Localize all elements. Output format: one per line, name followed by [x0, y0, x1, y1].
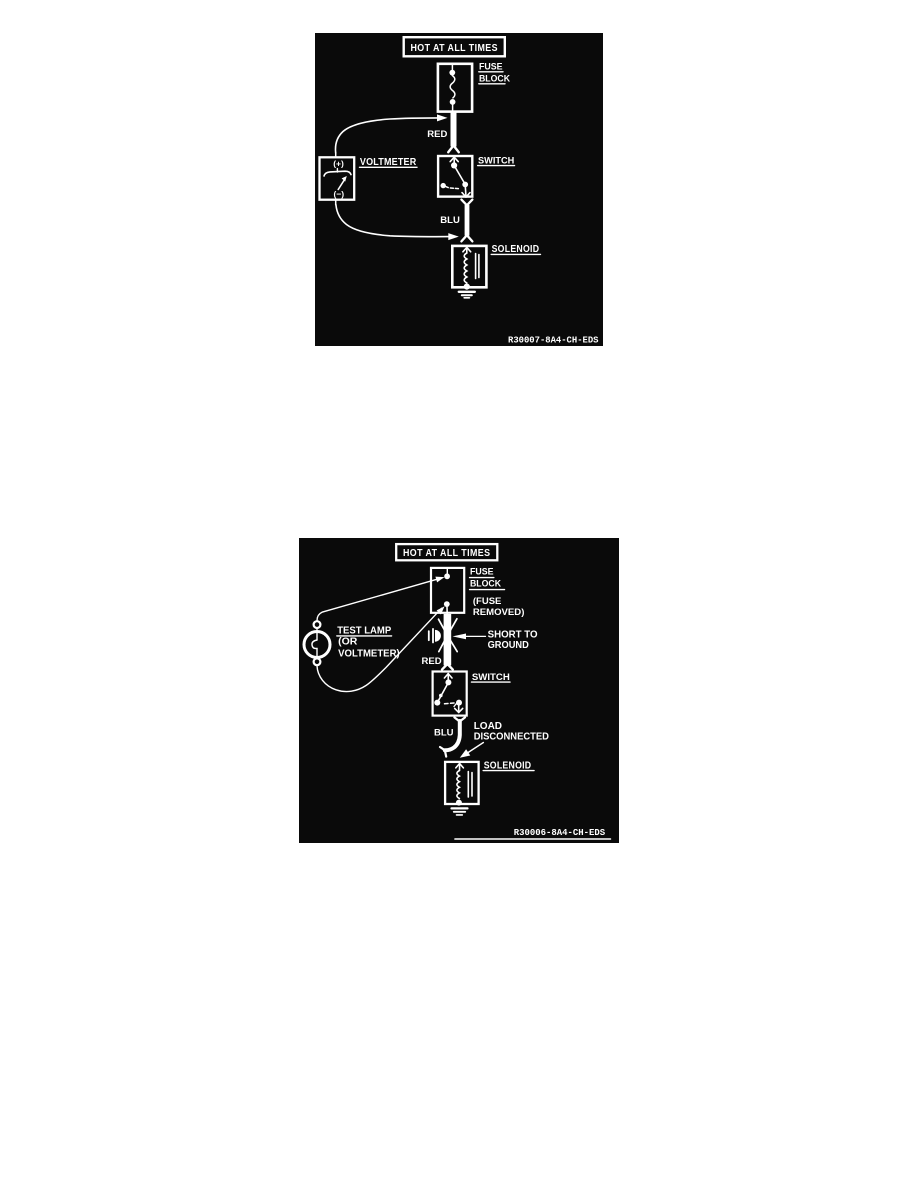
svg-text:(FUSE: (FUSE: [473, 596, 502, 607]
svg-text:HOT AT ALL TIMES: HOT AT ALL TIMES: [410, 42, 498, 54]
svg-text:BLOCK: BLOCK: [479, 74, 510, 85]
svg-text:SOLENOID: SOLENOID: [492, 244, 540, 255]
svg-text:VOLTMETER): VOLTMETER): [338, 647, 400, 659]
svg-text:HOT AT ALL TIMES: HOT AT ALL TIMES: [403, 547, 491, 559]
svg-text:LOAD: LOAD: [474, 721, 502, 732]
svg-text:DISCONNECTED: DISCONNECTED: [474, 732, 549, 743]
svg-text:SWITCH: SWITCH: [478, 155, 514, 166]
svg-text:R30006-8A4-CH-EDS: R30006-8A4-CH-EDS: [514, 827, 606, 838]
svg-text:RED: RED: [422, 656, 442, 667]
svg-text:VOLTMETER: VOLTMETER: [360, 157, 417, 168]
svg-text:FUSE: FUSE: [470, 567, 494, 578]
svg-text:GROUND: GROUND: [488, 640, 529, 651]
svg-text:(OR: (OR: [338, 636, 358, 648]
svg-text:(−): (−): [333, 189, 344, 199]
svg-text:RED: RED: [427, 129, 447, 140]
svg-text:R30007-8A4-CH-EDS: R30007-8A4-CH-EDS: [508, 334, 599, 345]
svg-text:BLU: BLU: [434, 727, 454, 738]
svg-text:BLOCK: BLOCK: [470, 579, 501, 590]
svg-text:FUSE: FUSE: [479, 62, 503, 73]
svg-text:REMOVED): REMOVED): [473, 607, 525, 618]
svg-text:SHORT TO: SHORT TO: [488, 629, 538, 640]
svg-text:TEST LAMP: TEST LAMP: [337, 624, 391, 636]
svg-text:(+): (+): [333, 159, 344, 169]
svg-text:SWITCH: SWITCH: [472, 672, 510, 683]
svg-text:BLU: BLU: [440, 215, 460, 226]
